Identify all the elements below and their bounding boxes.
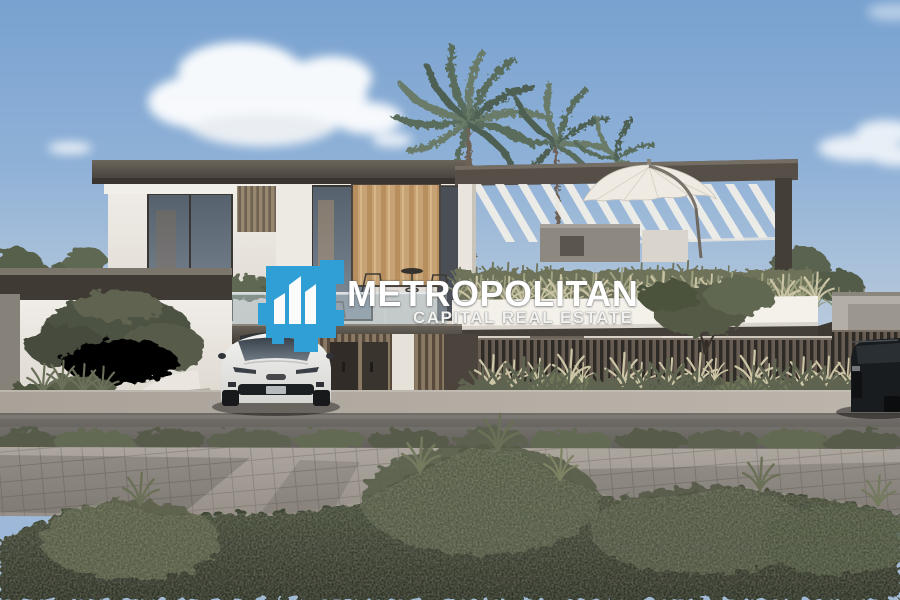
brand-tagline: CAPITAL REAL ESTATE (413, 309, 634, 326)
watermark: METROPOLITAN CAPITAL REAL ESTATE (0, 0, 900, 600)
metropolitan-logo-icon (256, 258, 352, 358)
real-estate-photo: METROPOLITAN CAPITAL REAL ESTATE (0, 0, 900, 600)
brand-name: METROPOLITAN (347, 276, 638, 312)
